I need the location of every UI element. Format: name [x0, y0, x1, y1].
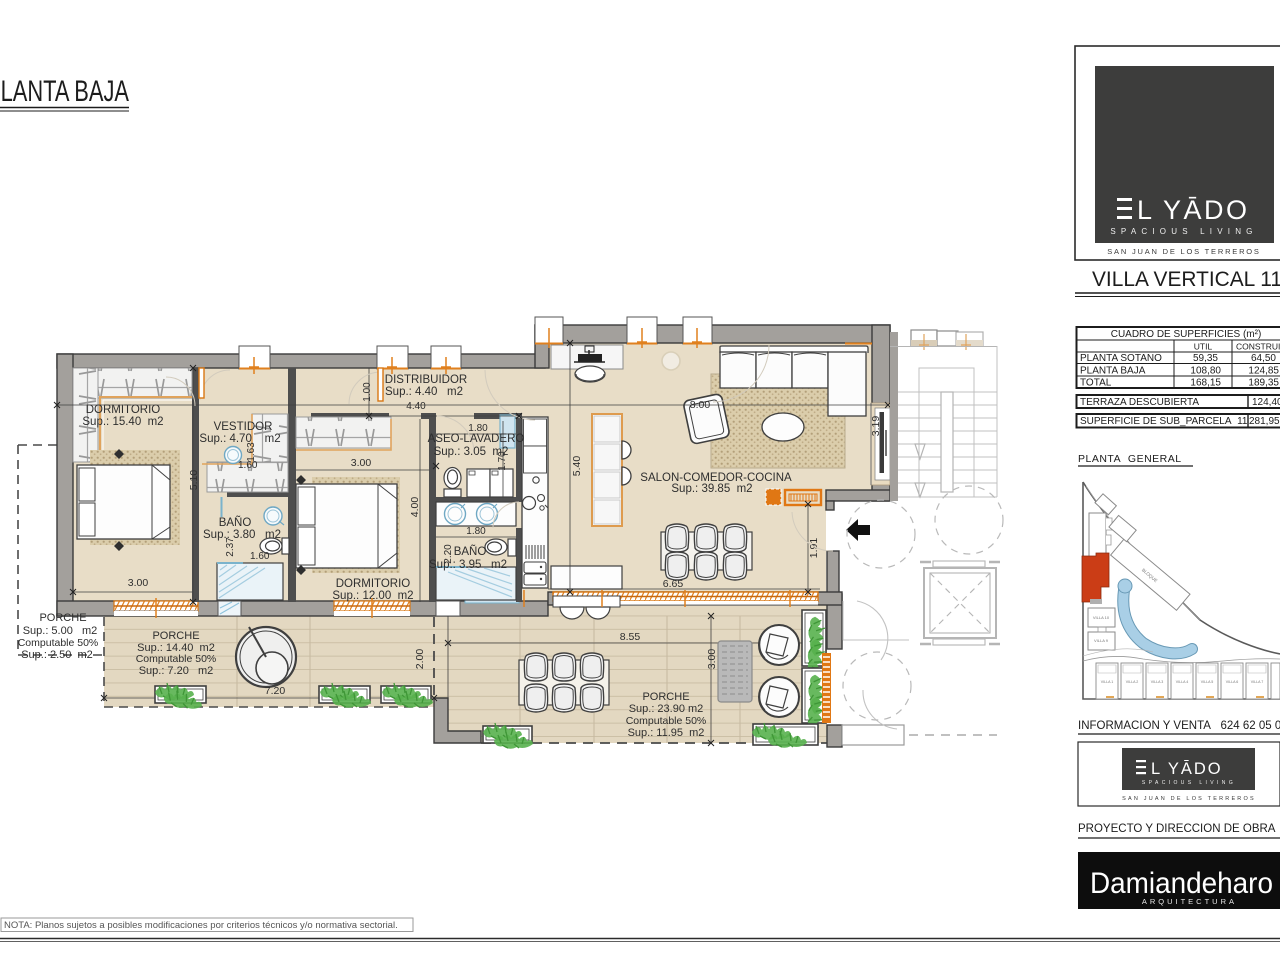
svg-text:1.60: 1.60 — [250, 551, 270, 562]
svg-text:124,85: 124,85 — [1248, 366, 1279, 377]
svg-text:4.00: 4.00 — [409, 497, 421, 518]
svg-text:VILLA 9: VILLA 9 — [1094, 638, 1109, 643]
svg-text:Sup.: 5.00 m2: Sup.: 5.00 m2 — [23, 625, 98, 637]
svg-text:7.20: 7.20 — [265, 685, 286, 697]
svg-text:3.00: 3.00 — [128, 577, 149, 589]
svg-text:PROYECTO Y DIRECCION DE OBRA: PROYECTO Y DIRECCION DE OBRA — [1078, 823, 1276, 835]
svg-text:PLANTA SOTANO: PLANTA SOTANO — [1080, 353, 1162, 364]
svg-text:108,80: 108,80 — [1190, 366, 1221, 377]
svg-text:PORCHE: PORCHE — [39, 612, 86, 624]
svg-text:64,50: 64,50 — [1251, 353, 1276, 364]
svg-text:PORCHE: PORCHE — [152, 630, 199, 642]
svg-text:Damiandeharo: Damiandeharo — [1090, 867, 1273, 900]
svg-text:VILLA 7: VILLA 7 — [1251, 680, 1264, 684]
svg-text:BAÑO: BAÑO — [454, 545, 487, 558]
svg-text:VILLA 10: VILLA 10 — [1093, 615, 1110, 620]
svg-text:Sup.: 39.85 m2: Sup.: 39.85 m2 — [671, 483, 752, 495]
svg-text:DORMITORIO: DORMITORIO — [86, 404, 161, 416]
svg-text:Sup.: 12.00 m2: Sup.: 12.00 m2 — [332, 590, 413, 602]
svg-text:VILLA 6: VILLA 6 — [1226, 680, 1239, 684]
svg-text:2.00: 2.00 — [414, 649, 426, 670]
svg-text:Computable 50%: Computable 50% — [18, 637, 99, 649]
svg-text:Sup.: 23.90 m2: Sup.: 23.90 m2 — [629, 703, 704, 715]
svg-text:L YĀDO: L YĀDO — [1151, 760, 1223, 778]
svg-text:168,15: 168,15 — [1190, 378, 1221, 389]
svg-text:8.55: 8.55 — [620, 631, 641, 643]
svg-text:BAÑO: BAÑO — [219, 516, 252, 529]
svg-text:SUPERFICIE DE SUB_PARCELA 11: SUPERFICIE DE SUB_PARCELA 11 — [1080, 416, 1248, 427]
svg-text:281,95: 281,95 — [1249, 416, 1280, 427]
svg-text:ASEO-LAVADERO: ASEO-LAVADERO — [428, 433, 525, 445]
svg-text:1.60: 1.60 — [238, 460, 258, 471]
svg-text:Sup.: 3.05 m2: Sup.: 3.05 m2 — [434, 446, 509, 458]
svg-text:TOTAL: TOTAL — [1080, 378, 1112, 389]
svg-text:INFORMACION Y VENTA 624 62 0: INFORMACION Y VENTA 624 62 05 0 — [1078, 720, 1280, 732]
svg-text:5.40: 5.40 — [571, 456, 583, 477]
svg-text:4.40: 4.40 — [406, 401, 426, 412]
svg-text:5.10: 5.10 — [188, 470, 200, 491]
svg-text:VILLA 5: VILLA 5 — [1201, 680, 1214, 684]
svg-text:SPACIOUS LIVING: SPACIOUS LIVING — [1142, 780, 1236, 786]
svg-text:CONSTRUID: CONSTRUID — [1236, 342, 1280, 352]
svg-text:Sup.: 11.95 m2: Sup.: 11.95 m2 — [628, 727, 705, 739]
svg-text:L YĀDO: L YĀDO — [1137, 195, 1250, 225]
svg-text:PLANTA GENERAL: PLANTA GENERAL — [1078, 453, 1182, 465]
svg-text:59,35: 59,35 — [1193, 353, 1218, 364]
svg-text:3.00: 3.00 — [706, 649, 718, 670]
svg-text:DORMITORIO: DORMITORIO — [336, 578, 411, 590]
svg-text:CUADRO DE SUPERFICIES (m²): CUADRO DE SUPERFICIES (m²) — [1111, 329, 1262, 340]
svg-text:VILLA 3: VILLA 3 — [1151, 680, 1164, 684]
svg-text:2.37: 2.37 — [225, 537, 236, 557]
svg-text:Sup.: 4.70 m2: Sup.: 4.70 m2 — [199, 433, 280, 445]
svg-text:Sup.: 3.95 m2: Sup.: 3.95 m2 — [429, 559, 507, 571]
svg-text:PLANTA BAJA: PLANTA BAJA — [1080, 366, 1146, 377]
svg-text:PLANTA BAJA: PLANTA BAJA — [0, 75, 129, 108]
svg-text:UTIL: UTIL — [1194, 342, 1213, 352]
svg-text:6.65: 6.65 — [663, 578, 684, 590]
svg-text:124,40: 124,40 — [1252, 397, 1280, 408]
svg-text:VILLA 1: VILLA 1 — [1101, 680, 1114, 684]
svg-text:3.19: 3.19 — [870, 416, 882, 437]
svg-text:Sup.: 7.20 m2: Sup.: 7.20 m2 — [139, 665, 214, 677]
svg-text:VESTIDOR: VESTIDOR — [214, 421, 273, 433]
svg-text:SAN JUAN DE LOS TERREROS: SAN JUAN DE LOS TERREROS — [1107, 247, 1261, 256]
svg-text:VILLA 2: VILLA 2 — [1126, 680, 1139, 684]
svg-text:SPACIOUS LIVING: SPACIOUS LIVING — [1110, 227, 1257, 236]
svg-text:Computable 50%: Computable 50% — [626, 715, 707, 727]
svg-text:3.00: 3.00 — [351, 457, 372, 469]
svg-text:1.00: 1.00 — [362, 382, 373, 402]
svg-text:1.63: 1.63 — [246, 442, 257, 462]
svg-text:Sup.: 15.40 m2: Sup.: 15.40 m2 — [82, 416, 163, 428]
svg-text:VILLA 4: VILLA 4 — [1176, 680, 1189, 684]
svg-text:PORCHE: PORCHE — [642, 691, 689, 703]
svg-text:189,35: 189,35 — [1248, 378, 1279, 389]
svg-text:ARQUITECTURA: ARQUITECTURA — [1142, 897, 1237, 906]
svg-text:DISTRIBUIDOR: DISTRIBUIDOR — [385, 374, 467, 386]
svg-text:NOTA: Planos sujetos a posible: NOTA: Planos sujetos a posibles modifica… — [4, 920, 398, 931]
svg-text:Sup.: 4.40 m2: Sup.: 4.40 m2 — [385, 386, 463, 398]
svg-text:VILLA VERTICAL 11: VILLA VERTICAL 11 — [1092, 268, 1280, 291]
svg-text:TERRAZA DESCUBIERTA: TERRAZA DESCUBIERTA — [1080, 397, 1199, 408]
svg-text:1.80: 1.80 — [466, 526, 486, 537]
svg-text:SAN JUAN DE LOS TERREROS: SAN JUAN DE LOS TERREROS — [1122, 796, 1256, 802]
svg-text:Computable 50%: Computable 50% — [136, 653, 217, 665]
svg-text:Sup.: 2.50 m2: Sup.: 2.50 m2 — [21, 649, 93, 661]
